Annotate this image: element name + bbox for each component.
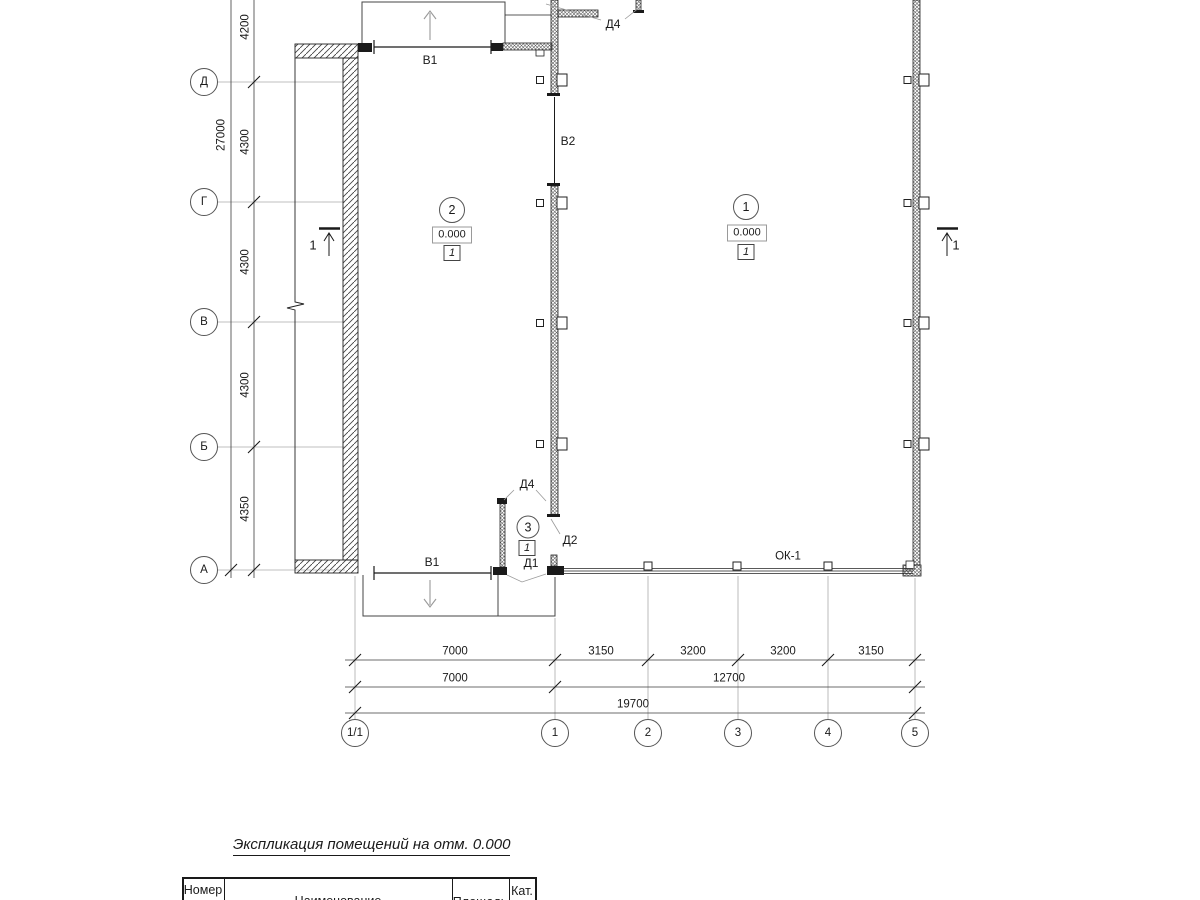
- room1-elevation: 0.000: [727, 225, 767, 242]
- grid-row-D: Д: [190, 68, 218, 96]
- section-mark-left: [319, 229, 340, 257]
- door-room3-out-label: Д1: [524, 557, 539, 569]
- dim-bot-7000b: 7000: [442, 673, 468, 685]
- door-entry-label: Д4: [606, 18, 621, 30]
- leader-lines: [504, 4, 640, 582]
- floor-plan-sheet: Д Г В Б А 1/1 1 2 3 4 5 4200 4300 4300 4…: [0, 0, 1200, 900]
- dim-bot-3200a: 3200: [680, 646, 706, 658]
- dim-bot-7000a: 7000: [442, 646, 468, 658]
- grid-row-lines: [217, 82, 345, 570]
- left-annex-edge: [287, 58, 304, 560]
- left-dimension-lines: [231, 0, 254, 578]
- grid-col-3: 3: [724, 719, 752, 747]
- ramp-top-arrow: [424, 11, 436, 40]
- left-wall: [295, 44, 358, 573]
- gate-bottom-label: В1: [425, 556, 440, 568]
- grid-row-A: А: [190, 556, 218, 584]
- grid-col-1: 1: [541, 719, 569, 747]
- grid-col-2: 2: [634, 719, 662, 747]
- top-wall-band: [503, 43, 552, 56]
- grid-row-B: Б: [190, 433, 218, 461]
- dim-left-4350: 4350: [240, 496, 252, 522]
- room3-number: 3: [517, 516, 540, 539]
- right-wall: [903, 0, 921, 576]
- ramp-bottom-arrow: [424, 580, 436, 607]
- room1-type-mark: 1: [738, 244, 755, 260]
- schedule-col-area: Площадь: [453, 895, 507, 900]
- gate-mid-label: В2: [561, 135, 576, 147]
- gate-top-opening: [358, 40, 503, 54]
- schedule-col-number: Номер: [184, 883, 222, 897]
- room2-elevation: 0.000: [432, 227, 472, 244]
- grid-row-G: Г: [190, 188, 218, 216]
- grid-col-1-1: 1/1: [341, 719, 369, 747]
- dim-left-4300b: 4300: [240, 249, 252, 275]
- dim-bot-3150a: 3150: [588, 646, 614, 658]
- schedule-col-name: Наименование: [295, 894, 382, 900]
- dim-bot-3150b: 3150: [858, 646, 884, 658]
- room3-type-mark: 1: [519, 540, 536, 556]
- ramp-bottom: [363, 575, 555, 616]
- grid-col-5: 5: [901, 719, 929, 747]
- gate-top-label: В1: [423, 54, 438, 66]
- dim-left-4300c: 4300: [240, 372, 252, 398]
- dim-bot-12700: 12700: [713, 673, 745, 685]
- ramp-top: [362, 2, 551, 43]
- dim-bot-19700: 19700: [617, 699, 649, 711]
- door-room3-top-label: Д4: [520, 478, 535, 490]
- plan-linework: [0, 0, 1200, 900]
- dim-left-4300a: 4300: [240, 129, 252, 155]
- dim-left-total: 27000: [216, 119, 228, 151]
- room2-number: 2: [439, 197, 465, 223]
- grid-row-V: В: [190, 308, 218, 336]
- schedule-col-category: Кат.: [511, 884, 533, 898]
- room1-number: 1: [733, 194, 759, 220]
- dim-bot-3200b: 3200: [770, 646, 796, 658]
- room2-type-mark: 1: [444, 245, 461, 261]
- schedule-title: Экспликация помещений на отм. 0.000: [233, 836, 510, 856]
- columns: [537, 74, 930, 570]
- section-number-right: 1: [952, 239, 959, 252]
- window-band-label: ОК-1: [775, 551, 801, 563]
- door-room3-side-label: Д2: [563, 534, 578, 546]
- dim-left-4200: 4200: [240, 14, 252, 40]
- grid-col-4: 4: [814, 719, 842, 747]
- section-number-left: 1: [309, 239, 316, 252]
